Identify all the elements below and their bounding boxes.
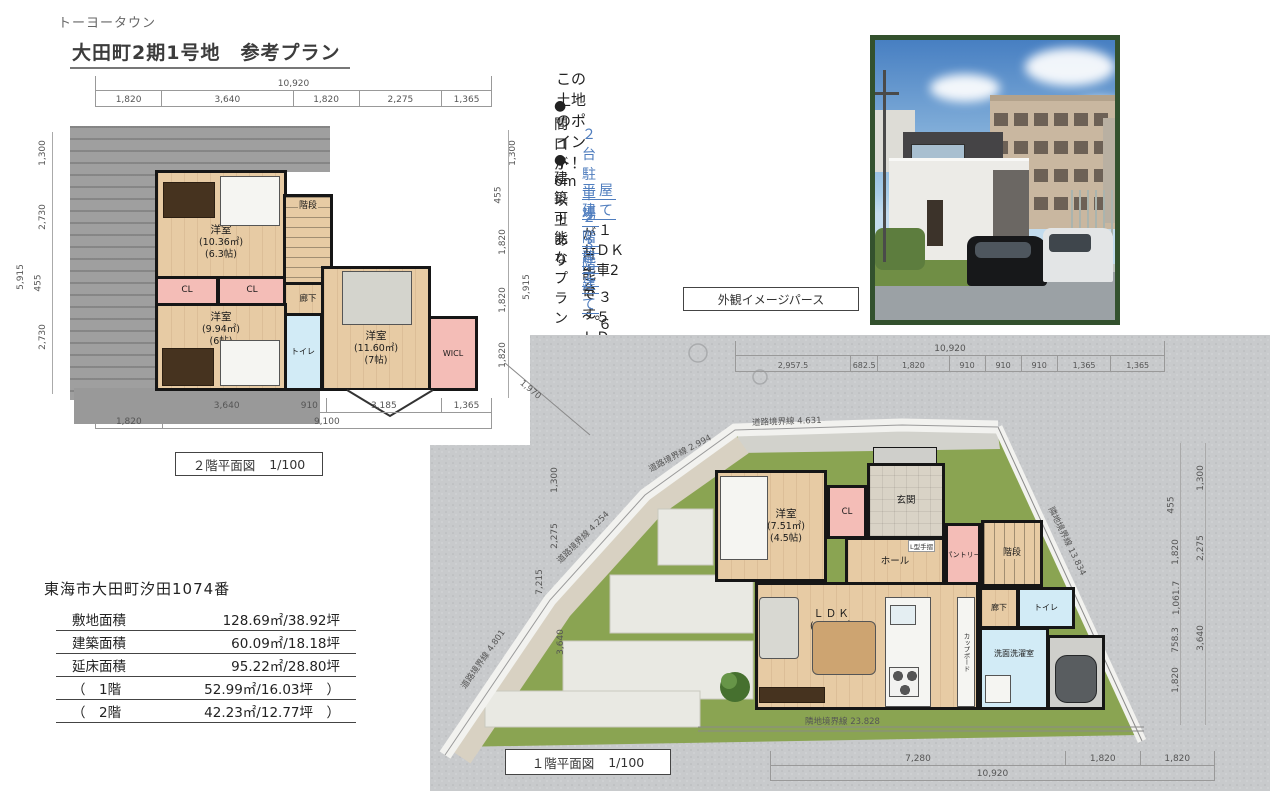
dim-segment: 3,185 bbox=[326, 398, 441, 412]
dim-value: 1,300 bbox=[38, 140, 48, 166]
room-area: (7.51㎡) bbox=[767, 521, 805, 533]
dim-value: 1,820 bbox=[313, 95, 339, 105]
boundary-label-neighbor: 隣地境界線 23.828 bbox=[805, 715, 880, 727]
dim-line bbox=[1180, 443, 1181, 725]
dim-segment: 1,365 bbox=[441, 91, 491, 106]
dim-segment: 7,280 bbox=[770, 751, 1065, 765]
dim-value: 1,820 bbox=[116, 95, 142, 105]
row-value: 128.69㎡/38.92坪 bbox=[180, 609, 356, 629]
dim-value: 1,820 bbox=[1090, 754, 1116, 764]
dim-segment bbox=[95, 398, 160, 412]
dim-value: 2,730 bbox=[38, 204, 48, 230]
dim-value: 1,820 bbox=[902, 361, 925, 370]
dim-value: 1,820 bbox=[498, 287, 508, 313]
room-stairs-1f: 階段 bbox=[981, 520, 1043, 587]
dim-segment: 10,920 bbox=[770, 766, 1214, 780]
dim-strip: 2,957.5 682.5 1,820 910 910 910 1,365 1,… bbox=[735, 356, 1165, 372]
site-plan-1f: 10,920 2,957.5 682.5 1,820 910 910 910 1… bbox=[430, 335, 1270, 791]
dim-strip: 1,820 3,640 1,820 2,275 1,365 bbox=[95, 91, 492, 107]
dim-value: 7,280 bbox=[905, 754, 931, 764]
dim-value: 1,365 bbox=[454, 95, 480, 105]
apartment-windows bbox=[994, 113, 1111, 126]
dim-value: 2,275 bbox=[388, 95, 414, 105]
boundary-label-road: 道路境界線 4.631 bbox=[752, 414, 822, 428]
dim-value: 5,915 bbox=[16, 264, 26, 290]
bathtub-shape bbox=[1055, 655, 1097, 703]
dim-value: 2,957.5 bbox=[778, 361, 809, 370]
dim-segment: 3,640 bbox=[161, 91, 292, 106]
dim-value: 7,215 bbox=[535, 569, 545, 595]
room-name: 廊下 bbox=[299, 294, 316, 305]
dim-value: 1,365 bbox=[1073, 361, 1096, 370]
dim-value: 10,920 bbox=[977, 769, 1009, 779]
room-tatami: (6.3帖) bbox=[205, 249, 237, 261]
dim-segment: 3,640 bbox=[160, 398, 292, 412]
desk-shape bbox=[162, 348, 214, 386]
dim-segment: 910 bbox=[949, 356, 985, 371]
closet-cl-1f: CL bbox=[827, 485, 867, 539]
room-name: トイレ bbox=[1034, 603, 1058, 613]
row-label: 建築面積 bbox=[56, 632, 180, 652]
dim-value: 910 bbox=[1032, 361, 1047, 370]
cloud-shape bbox=[1025, 48, 1115, 86]
closet-cl2: CL bbox=[217, 276, 287, 306]
dining-table-shape bbox=[812, 621, 876, 675]
dim-strip: 10,920 bbox=[95, 76, 492, 91]
dim-value: 10,920 bbox=[278, 79, 310, 89]
dim-segment: 1,820 bbox=[877, 356, 948, 371]
bullet-icon: ● bbox=[554, 152, 566, 168]
closet-cl1: CL bbox=[155, 276, 219, 306]
dim-value: 1,300 bbox=[550, 467, 560, 493]
room-name: CL bbox=[842, 507, 853, 518]
dim-segment: 2,957.5 bbox=[735, 356, 850, 371]
bullet-icon: ● bbox=[554, 98, 566, 114]
dim-value: 455 bbox=[1167, 496, 1177, 513]
kitchen-sink-shape bbox=[890, 605, 916, 625]
dim-value: 1,365 bbox=[1126, 361, 1149, 370]
room-hallway-1f: 廊下 bbox=[979, 587, 1019, 629]
dim-segment: 10,920 bbox=[735, 341, 1164, 355]
points-item-2-text: 建築可能なプラン bbox=[554, 171, 568, 327]
property-address: 東海市大田町汐田1074番 bbox=[44, 578, 230, 599]
brand-name: トーヨータウン bbox=[58, 12, 156, 31]
table-row: 敷地面積 128.69㎡/38.92坪 bbox=[56, 608, 356, 631]
dim-strip: 7,280 1,820 1,820 bbox=[770, 751, 1215, 766]
dim-value: 2,275 bbox=[550, 523, 560, 549]
photo-caption-box: 外観イメージパース bbox=[683, 287, 859, 311]
handrail-label: L型手摺 bbox=[908, 540, 935, 552]
room-tatami: (7帖) bbox=[365, 355, 388, 367]
sofa-shape bbox=[759, 597, 799, 659]
dim-value: 455 bbox=[34, 274, 44, 291]
dim-value: 910 bbox=[959, 361, 974, 370]
room-name: 洋室 bbox=[211, 311, 232, 324]
dim-value: 3,640 bbox=[556, 629, 566, 655]
table-row: 建築面積 60.09㎡/18.18坪 bbox=[56, 631, 356, 654]
utility-pole-crossarm bbox=[875, 92, 899, 95]
dim-value: 3,640 bbox=[214, 401, 240, 411]
dim-value: 10,920 bbox=[934, 344, 966, 354]
dim-segment: 1,365 bbox=[1057, 356, 1111, 371]
dim-value: 3,185 bbox=[371, 401, 397, 411]
table-row: 延床面積 95.22㎡/28.80坪 bbox=[56, 654, 356, 677]
room-toilet-1f: トイレ bbox=[1017, 587, 1075, 629]
plan2f-caption-box: ２階平面図 1/100 bbox=[175, 452, 323, 476]
room-tatami: (4.5帖) bbox=[770, 533, 802, 545]
dim-value: 1,300 bbox=[508, 140, 518, 166]
plan-option-link-3kai[interactable]: ３階建て bbox=[582, 237, 599, 314]
dim-segment: 1,820 bbox=[293, 91, 359, 106]
room-toilet-2f: トイレ bbox=[283, 313, 323, 391]
row-value: 52.99㎡/16.03坪 ） bbox=[180, 678, 356, 698]
row-label: （ 2階 bbox=[56, 701, 180, 721]
plan1f-caption: １階平面図 bbox=[532, 753, 595, 772]
cupboard-label: カップボード bbox=[961, 633, 971, 672]
apartment-windows bbox=[994, 141, 1111, 154]
plan-sheet: トーヨータウン 大田町2期1号地 参考プラン 10,920 1,820 3,64… bbox=[0, 0, 1280, 791]
room-pantry: パントリー bbox=[945, 523, 981, 587]
table-row: （ 2階 42.23㎡/12.77坪 ） bbox=[56, 700, 356, 723]
room-name: 階段 bbox=[1002, 548, 1022, 559]
dim-segment: 10,920 bbox=[95, 76, 491, 90]
dim-value: 1,820 bbox=[1164, 754, 1190, 764]
utility-pole-shape bbox=[883, 70, 886, 262]
dim-value: 682.5 bbox=[853, 361, 876, 370]
row-value: 42.23㎡/12.77坪 ） bbox=[180, 701, 356, 721]
dim-segment: 1,820 bbox=[95, 91, 161, 106]
dim-value: 1,820 bbox=[116, 417, 142, 427]
dim-segment: 1,820 bbox=[1065, 751, 1140, 765]
row-value: 60.09㎡/18.18坪 bbox=[180, 632, 356, 652]
row-label: 敷地面積 bbox=[56, 609, 180, 629]
washer-shape bbox=[985, 675, 1011, 703]
desk-shape bbox=[163, 182, 215, 218]
bed-shape bbox=[342, 271, 412, 325]
dim-value: 1,820 bbox=[498, 229, 508, 255]
room-name: 廊下 bbox=[991, 603, 1007, 613]
row-label: （ 1階 bbox=[56, 678, 180, 698]
dim-value: 910 bbox=[301, 401, 318, 411]
property-table: 敷地面積 128.69㎡/38.92坪 建築面積 60.09㎡/18.18坪 延… bbox=[56, 608, 356, 723]
points-item-2: ●建築可能なプラン bbox=[554, 152, 568, 328]
dim-segment: 1,820 bbox=[1140, 751, 1215, 765]
dim-line bbox=[1205, 443, 1206, 725]
room-area: (9.94㎡) bbox=[202, 324, 240, 336]
dim-strip: 10,920 bbox=[770, 766, 1215, 781]
dim-segment: 910 bbox=[1021, 356, 1057, 371]
table-row: （ 1階 52.99㎡/16.03坪 ） bbox=[56, 677, 356, 700]
dim-value: 9,100 bbox=[314, 417, 340, 427]
tv-board-shape bbox=[759, 687, 825, 703]
room-name: 階段 bbox=[298, 201, 318, 212]
dim-value: 5,915 bbox=[522, 274, 532, 300]
room-name: ホール bbox=[881, 556, 910, 568]
bed-shape bbox=[720, 476, 768, 560]
dim-value: 3,640 bbox=[214, 95, 240, 105]
entrance-door-shape bbox=[927, 200, 943, 246]
room-area: (10.36㎡) bbox=[199, 237, 243, 249]
dim-strip: 10,920 bbox=[735, 341, 1165, 356]
exterior-photo bbox=[870, 35, 1120, 325]
room-name: ＬＤＫ bbox=[813, 608, 851, 621]
roof-shape bbox=[70, 126, 158, 400]
dim-segment: 910 bbox=[292, 398, 326, 412]
dim-segment: 1,820 bbox=[95, 413, 162, 428]
plan1f-scale: 1/100 bbox=[608, 755, 644, 770]
bed-shape bbox=[220, 340, 280, 386]
dim-value: 455 bbox=[494, 186, 504, 203]
photo-caption: 外観イメージパース bbox=[718, 291, 824, 308]
room-area: (11.60㎡) bbox=[354, 343, 398, 355]
room-name: 洗面洗濯室 bbox=[994, 649, 1034, 659]
black-car-window bbox=[975, 242, 1031, 258]
room-entrance: 玄関 bbox=[867, 463, 945, 539]
dim-segment: 910 bbox=[985, 356, 1021, 371]
cupboard-shape: カップボード bbox=[957, 597, 975, 707]
dim-segment: 2,275 bbox=[359, 91, 441, 106]
plan1f-caption-box: １階平面図 1/100 bbox=[505, 749, 671, 775]
dim-line bbox=[52, 132, 53, 394]
room-name: 洋室 bbox=[776, 508, 797, 521]
row-label: 延床面積 bbox=[56, 655, 180, 675]
row-value: 95.22㎡/28.80坪 bbox=[180, 655, 356, 675]
plan2f-scale: 1/100 bbox=[269, 457, 305, 472]
page-title: 大田町2期1号地 参考プラン bbox=[70, 38, 350, 69]
room-name: CL bbox=[181, 285, 192, 296]
plan2f-caption: ２階平面図 bbox=[193, 455, 256, 474]
room-name: CL bbox=[246, 285, 257, 296]
white-van-window bbox=[1049, 234, 1091, 252]
room-name: パントリー bbox=[945, 551, 980, 560]
room-name: トイレ bbox=[291, 347, 315, 357]
dim-value: 2,730 bbox=[38, 324, 48, 350]
bed-shape bbox=[220, 176, 280, 226]
room-name: 洋室 bbox=[366, 330, 387, 343]
dim-segment: 1,365 bbox=[1110, 356, 1164, 371]
dim-value: 910 bbox=[995, 361, 1010, 370]
stove-shape bbox=[889, 667, 919, 697]
room-name: 玄関 bbox=[896, 495, 915, 507]
dim-segment: 682.5 bbox=[850, 356, 877, 371]
